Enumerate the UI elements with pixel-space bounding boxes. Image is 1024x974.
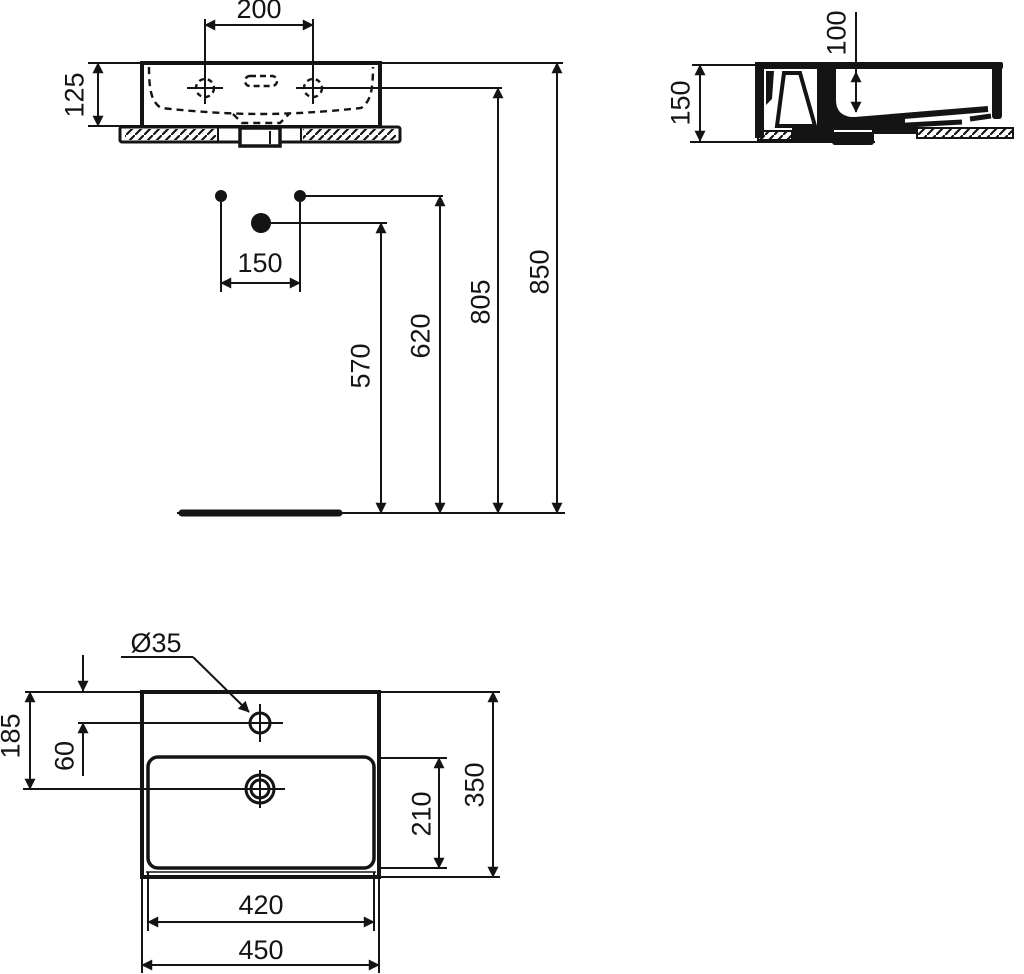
- front-view: 200 125: [59, 0, 563, 146]
- back-wall-section: [755, 62, 764, 138]
- rim-section: [755, 62, 1003, 69]
- base-hatch-right: [917, 128, 1013, 138]
- base-section: [872, 124, 916, 134]
- side-view: 150 100: [665, 10, 1013, 145]
- dim-350-label: 350: [459, 762, 489, 807]
- dim-150-side-label: 150: [665, 80, 695, 125]
- technical-drawing-washbasin: 200 125 150 57: [0, 0, 1024, 974]
- basin-front-outline: [142, 63, 380, 127]
- shelf-hatch-left: [125, 129, 216, 140]
- dim-100-label: 100: [821, 10, 851, 55]
- dim-185-label: 185: [0, 713, 25, 758]
- dim-620-label: 620: [405, 313, 435, 358]
- dim-420-label: 420: [238, 890, 283, 920]
- shelf-hatch-right: [303, 129, 396, 140]
- dim-125-label: 125: [59, 72, 89, 117]
- dim-150-holes-label: 150: [237, 248, 282, 278]
- dim-450-label: 450: [238, 935, 283, 965]
- dim-570-label: 570: [345, 343, 375, 388]
- dim-805-label: 805: [465, 279, 495, 324]
- fixing-bracket-section: [777, 73, 815, 126]
- top-view: Ø35 185 60 420 450 210: [0, 628, 500, 973]
- base-section: [792, 128, 834, 141]
- bowl-floor-line: [855, 109, 988, 120]
- fixing-hole-dot-left: [215, 190, 227, 202]
- front-wall-section: [992, 62, 1002, 119]
- trap-section: [832, 132, 874, 145]
- bowl-underside-step: [970, 116, 991, 119]
- drain-trap-box: [240, 128, 280, 146]
- dim-200-label: 200: [236, 0, 281, 24]
- channel-gap: [840, 70, 867, 113]
- drawing-svg: 200 125 150 57: [0, 0, 1024, 974]
- wall-detail: [766, 71, 774, 105]
- dim-210-label: 210: [406, 791, 436, 836]
- base-hatch-left: [758, 131, 792, 140]
- dim-60-label: 60: [49, 741, 79, 771]
- dim-dia35-label: Ø35: [130, 628, 181, 658]
- dim-850-label: 850: [524, 249, 554, 294]
